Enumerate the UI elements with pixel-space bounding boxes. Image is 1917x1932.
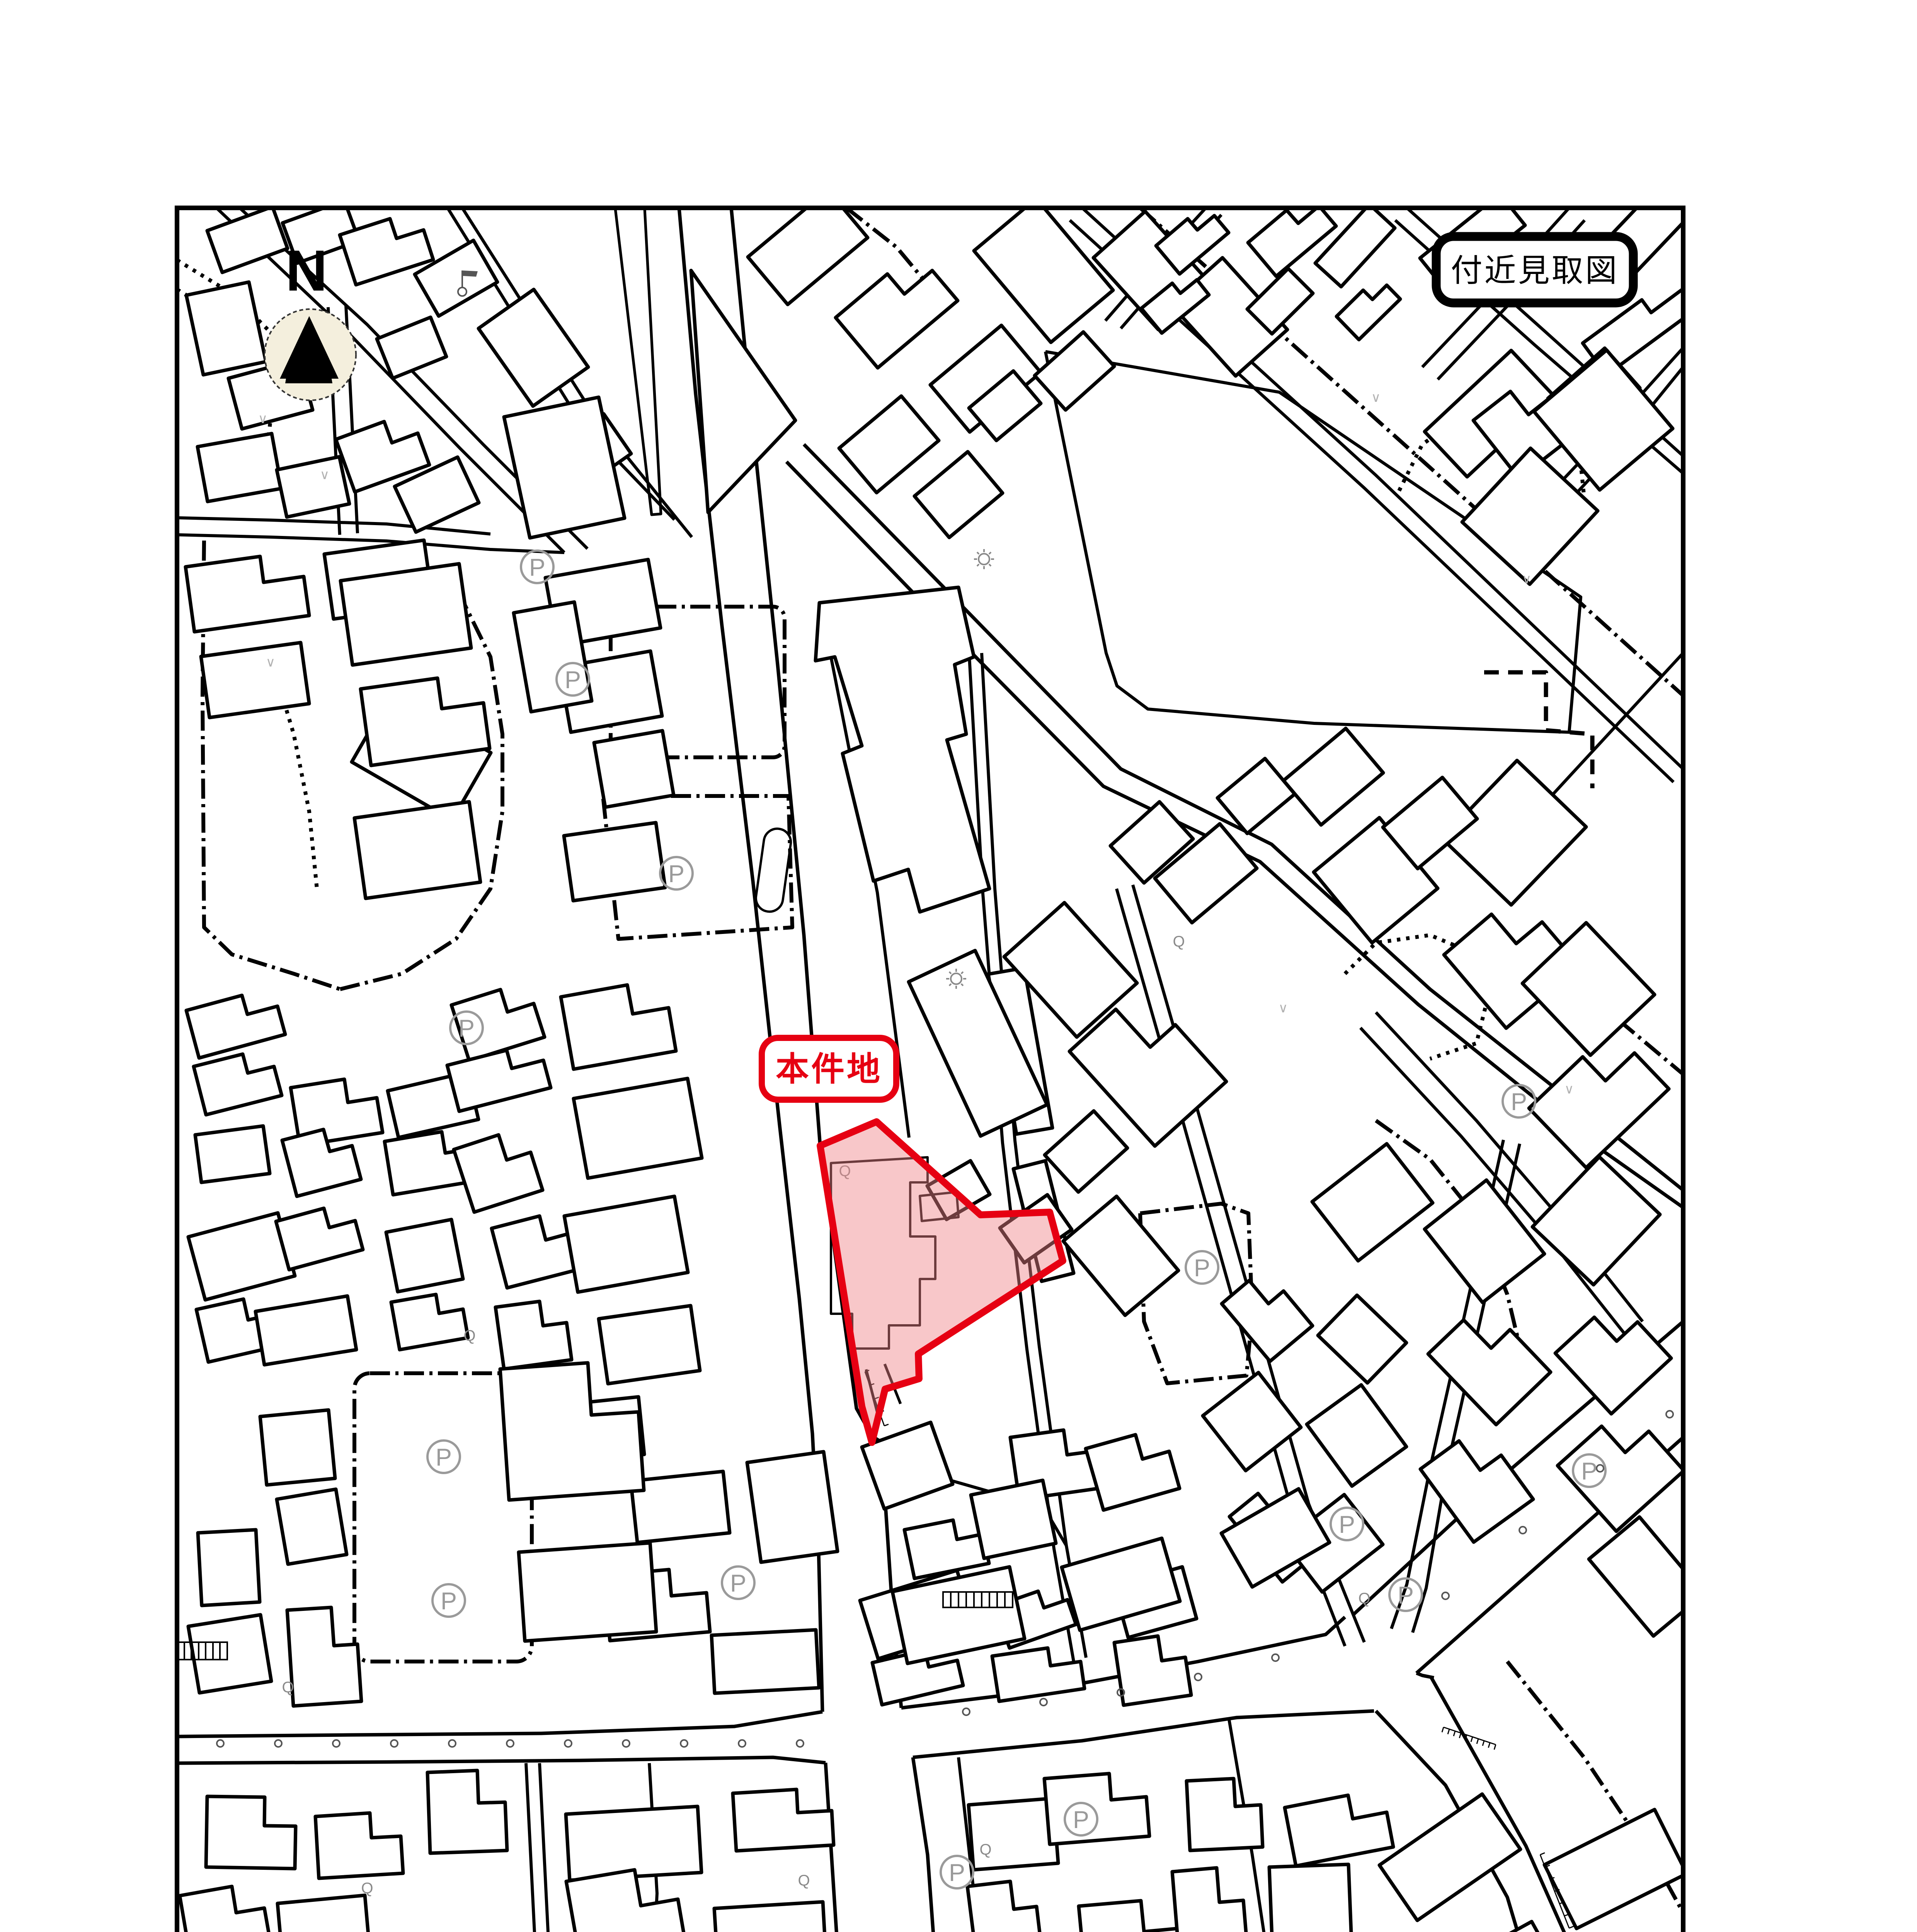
svg-text:Q: Q <box>282 1679 294 1696</box>
svg-text:Q: Q <box>361 1880 373 1897</box>
svg-text:∨: ∨ <box>1279 1001 1288 1015</box>
svg-text:P: P <box>668 861 684 888</box>
svg-text:P: P <box>436 1444 452 1471</box>
svg-text:∨: ∨ <box>320 468 330 482</box>
svg-text:付近見取図: 付近見取図 <box>1451 253 1619 288</box>
svg-text:∨: ∨ <box>258 412 268 426</box>
svg-text:P: P <box>949 1859 965 1886</box>
svg-text:P: P <box>1339 1511 1355 1538</box>
svg-text:Q: Q <box>1358 1590 1370 1607</box>
svg-text:P: P <box>1073 1806 1089 1833</box>
svg-text:Q: Q <box>979 1841 991 1858</box>
svg-text:Q: Q <box>463 1327 475 1344</box>
svg-text:P: P <box>1511 1088 1527 1116</box>
svg-text:P: P <box>1398 1582 1414 1609</box>
svg-text:P: P <box>458 1015 475 1042</box>
svg-text:P: P <box>1581 1458 1597 1485</box>
svg-text:∨: ∨ <box>266 655 276 670</box>
svg-text:P: P <box>565 667 581 694</box>
svg-text:∨: ∨ <box>1371 390 1381 405</box>
svg-text:本件地: 本件地 <box>776 1051 882 1088</box>
svg-text:∨: ∨ <box>1565 1082 1574 1097</box>
svg-text:Q: Q <box>1173 933 1185 950</box>
svg-text:Q: Q <box>798 1872 810 1889</box>
svg-text:N: N <box>286 238 327 303</box>
svg-text:P: P <box>529 554 545 581</box>
svg-text:P: P <box>441 1588 457 1615</box>
svg-text:∨: ∨ <box>1522 572 1532 587</box>
svg-text:P: P <box>730 1570 746 1597</box>
svg-text:P: P <box>1194 1255 1210 1282</box>
